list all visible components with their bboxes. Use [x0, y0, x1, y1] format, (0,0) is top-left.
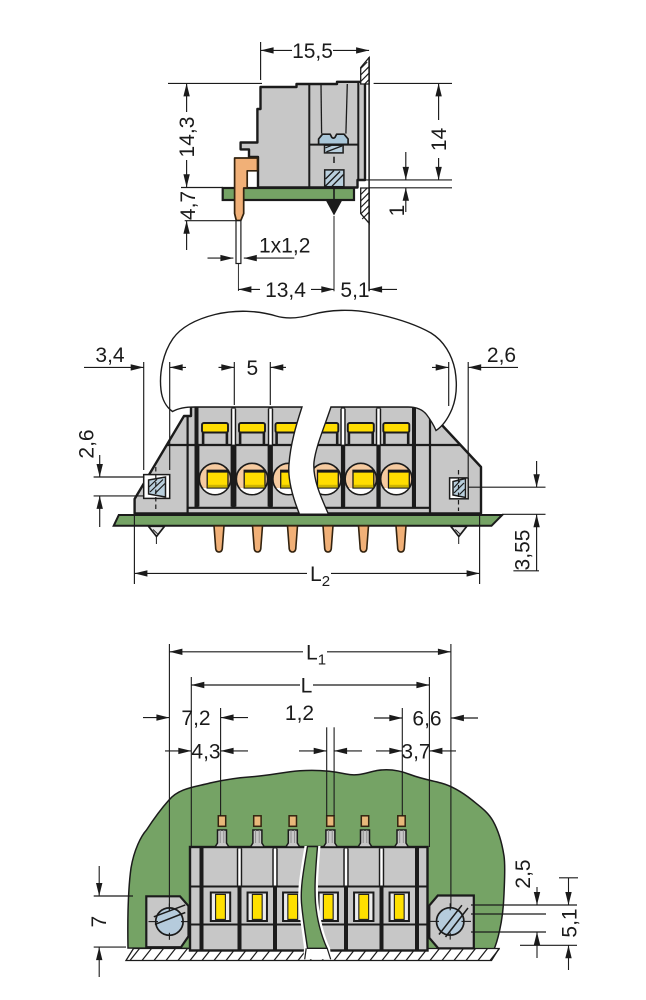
svg-text:14,3: 14,3 [176, 117, 199, 158]
svg-text:2,6: 2,6 [487, 344, 516, 367]
svg-text:2,6: 2,6 [76, 429, 99, 458]
svg-text:L: L [301, 675, 313, 698]
svg-text:3,55: 3,55 [512, 530, 535, 571]
svg-text:4,3: 4,3 [191, 740, 220, 763]
svg-text:7,2: 7,2 [181, 707, 210, 730]
svg-text:15,5: 15,5 [292, 40, 333, 63]
svg-text:2,5: 2,5 [512, 859, 535, 888]
svg-text:1x1,2: 1x1,2 [259, 235, 310, 258]
svg-text:6,6: 6,6 [412, 708, 441, 731]
svg-text:14: 14 [428, 127, 451, 151]
svg-text:1: 1 [386, 205, 409, 217]
svg-text:3,7: 3,7 [401, 740, 430, 763]
svg-text:7: 7 [88, 916, 111, 928]
svg-text:5: 5 [246, 357, 258, 380]
svg-text:5,1: 5,1 [558, 908, 581, 937]
svg-text:13,4: 13,4 [265, 279, 306, 302]
svg-text:5,1: 5,1 [340, 279, 369, 302]
svg-text:1,2: 1,2 [285, 702, 314, 725]
svg-text:4,7: 4,7 [177, 191, 200, 220]
svg-text:3,4: 3,4 [95, 344, 125, 367]
